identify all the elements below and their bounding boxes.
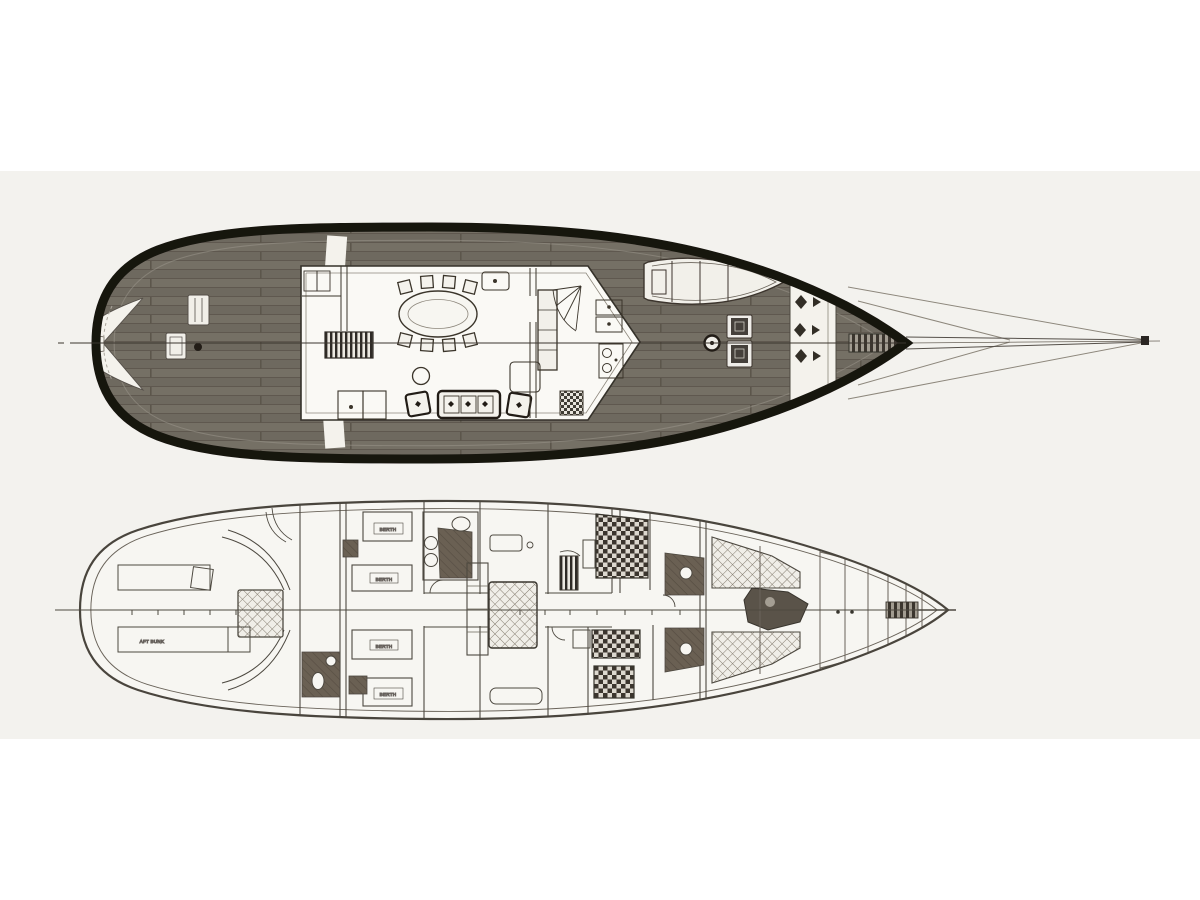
aft-cabin-table	[238, 590, 283, 637]
toilet	[312, 673, 324, 690]
double-berth-checker	[592, 630, 640, 658]
mizzen-mast-icon	[194, 343, 202, 351]
foredeck-hatches	[727, 315, 752, 367]
head-compartment-fwd-port	[665, 553, 704, 595]
toilet	[452, 517, 470, 531]
double-berth-checker	[596, 514, 648, 578]
svg-text:BERTH: BERTH	[380, 692, 397, 697]
svg-text:BERTH: BERTH	[376, 644, 393, 649]
aft-bunk-label: AFT BUNK	[140, 639, 165, 644]
mid-stairs	[560, 551, 580, 590]
sofa	[405, 391, 531, 418]
bowsprit-tip	[1141, 336, 1149, 345]
sink	[425, 554, 438, 567]
svg-text:BERTH: BERTH	[376, 577, 393, 582]
svg-text:BERTH: BERTH	[380, 527, 397, 532]
sink	[326, 656, 336, 666]
sink	[425, 537, 438, 550]
head-compartment-aft	[302, 652, 340, 697]
galley-tile	[560, 391, 583, 415]
companionway-stairs-aft	[325, 332, 373, 358]
yacht-deck-plans: AFT BUNK BERTH BERTH BERTH BERTH	[0, 0, 1200, 900]
scanned-yacht-plan-page: AFT BUNK BERTH BERTH BERTH BERTH	[0, 0, 1200, 900]
head-compartment-fwd-starboard	[665, 628, 704, 672]
dining-table	[399, 291, 477, 337]
master-bed	[489, 582, 537, 648]
double-berth-checker	[594, 666, 634, 698]
